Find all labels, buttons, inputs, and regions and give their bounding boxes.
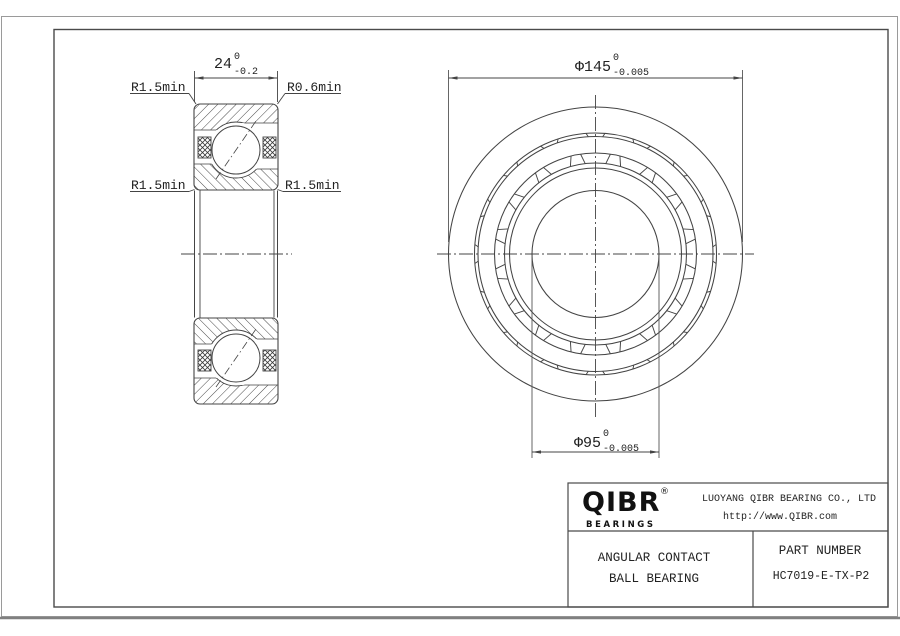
- bearing-drawing: 24 0 -0.2 R1.5min R0.6min R1.5min R1.5mi…: [0, 0, 900, 636]
- width-tol-upper: 0: [234, 52, 240, 63]
- chamfer-label-mid-left: R1.5min: [131, 178, 186, 193]
- od-tol-upper: 0: [613, 53, 619, 64]
- drawing-sheet: 24 0 -0.2 R1.5min R0.6min R1.5min R1.5mi…: [0, 0, 900, 636]
- cross-section-view: [181, 104, 292, 404]
- od-tol-lower: -0.005: [613, 68, 649, 79]
- chamfer-label-top-right: R0.6min: [287, 80, 342, 95]
- front-view: [437, 95, 754, 420]
- cage-section: [263, 137, 276, 158]
- logo-subtext: BEARINGS: [586, 520, 656, 530]
- width-value: 24: [214, 56, 232, 73]
- sheet-frame: [0, 17, 900, 619]
- cage-section: [198, 350, 211, 371]
- product-type-line2: BALL BEARING: [609, 572, 699, 586]
- bore-tol-upper: 0: [603, 429, 609, 440]
- od-value: Φ145: [575, 59, 611, 76]
- logo-text: QIBR: [582, 487, 660, 518]
- dimension-bore-diameter: Φ95 0 -0.005: [532, 256, 659, 458]
- cage-section: [263, 350, 276, 371]
- company-website: http://www.QIBR.com: [723, 511, 837, 523]
- dimension-width: 24 0 -0.2: [195, 52, 278, 102]
- cage-section: [198, 137, 211, 158]
- chamfer-label-mid-right: R1.5min: [285, 178, 340, 193]
- bore-value: Φ95: [574, 435, 601, 452]
- title-block: QIBR ® BEARINGS LUOYANG QIBR BEARING CO.…: [568, 483, 888, 607]
- width-tol-lower: -0.2: [234, 67, 258, 78]
- bore-tol-lower: -0.005: [603, 444, 639, 455]
- registered-trademark-icon: ®: [660, 487, 669, 497]
- company-name: LUOYANG QIBR BEARING CO., LTD: [702, 494, 876, 505]
- product-type-line1: ANGULAR CONTACT: [598, 551, 711, 565]
- chamfer-label-top-left: R1.5min: [131, 80, 186, 95]
- part-number-label: PART NUMBER: [779, 544, 862, 558]
- company-logo: QIBR ® BEARINGS: [582, 487, 669, 530]
- part-number-value: HC7019-E-TX-P2: [773, 570, 870, 583]
